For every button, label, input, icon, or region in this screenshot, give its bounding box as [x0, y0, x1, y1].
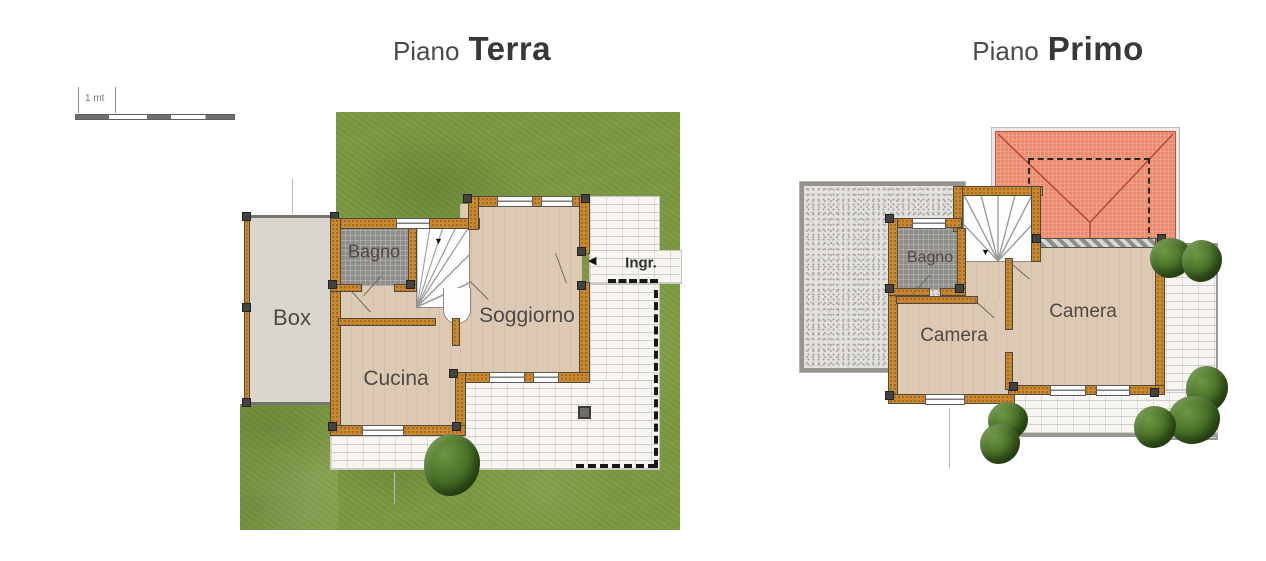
- window: [1050, 385, 1086, 396]
- room-label-soggiorno: Soggiorno: [479, 304, 575, 328]
- scale-rule: [75, 114, 235, 120]
- pillar: [452, 422, 461, 431]
- pillar: [242, 212, 251, 221]
- room-label-camera-left: Camera: [920, 325, 988, 347]
- staircase: [963, 194, 1033, 262]
- window: [541, 196, 573, 207]
- drain-grate: [578, 406, 591, 419]
- wall-segment: [338, 318, 436, 326]
- pillar: [1009, 382, 1018, 391]
- pillar: [955, 284, 964, 293]
- dashed-boundary: [654, 290, 658, 468]
- room-label-ingresso: Ingr.: [625, 255, 657, 272]
- pillar: [328, 422, 337, 431]
- pillar: [406, 280, 415, 289]
- wall-segment: [579, 282, 590, 383]
- stairs-down-arrow-icon: ▼: [981, 248, 990, 257]
- wall-segment: [330, 218, 341, 436]
- room-label-bagno: Bagno: [907, 249, 953, 267]
- pillar: [449, 369, 458, 378]
- pillar: [885, 214, 894, 223]
- wall-segment: [888, 288, 930, 296]
- window: [1096, 385, 1130, 396]
- paving-terrace: [589, 284, 660, 382]
- window: [925, 394, 965, 405]
- pillar: [885, 391, 894, 400]
- ref-line: [394, 472, 395, 504]
- room-label-box: Box: [273, 305, 311, 331]
- wall-segment: [953, 186, 1043, 196]
- window: [497, 196, 533, 207]
- pillar: [328, 280, 337, 289]
- ref-line: [949, 408, 950, 468]
- pillar: [242, 398, 251, 407]
- bush: [1134, 406, 1176, 448]
- plan-title-name: Primo: [1048, 30, 1144, 67]
- pillar: [1032, 234, 1041, 243]
- plan-title-prefix: Piano: [972, 36, 1039, 66]
- wall-segment: [1005, 258, 1013, 330]
- window: [362, 425, 404, 436]
- wall-segment: [1008, 385, 1165, 395]
- entry-arrow-icon: ◀: [588, 256, 596, 267]
- pillar: [577, 247, 586, 256]
- window: [489, 372, 525, 383]
- window: [396, 218, 430, 229]
- dashed-roof-outline: [1028, 158, 1150, 243]
- plan-title-terra: PianoTerra: [332, 30, 612, 68]
- wall-segment: [452, 318, 460, 346]
- pillar: [885, 284, 894, 293]
- plan-title-primo: PianoPrimo: [918, 30, 1198, 68]
- room-floor-camera-left: [896, 296, 1012, 398]
- room-label-camera-right: Camera: [1049, 301, 1117, 323]
- ref-line: [292, 178, 293, 214]
- window: [912, 218, 946, 229]
- scale-label: 1 mt: [85, 93, 104, 104]
- bush: [980, 424, 1020, 464]
- room-floor-soggiorno: [460, 204, 582, 382]
- plan-title-name: Terra: [468, 30, 551, 67]
- dashed-boundary: [576, 464, 656, 468]
- stairs-down-arrow-icon: ▼: [434, 237, 443, 246]
- window: [533, 372, 559, 383]
- plan-title-prefix: Piano: [393, 36, 460, 66]
- grass-area: [240, 404, 338, 530]
- wall-segment: [896, 296, 978, 304]
- pillar: [242, 303, 251, 312]
- paving-terrace: [589, 196, 660, 254]
- wall-segment: [1031, 186, 1041, 262]
- dashed-boundary: [608, 279, 658, 283]
- pillar: [1150, 388, 1159, 397]
- wall-segment: [888, 218, 898, 404]
- paving-terrace: [458, 380, 660, 470]
- wall-segment-parapet: [1035, 238, 1165, 248]
- floorplan-canvas: PianoTerra PianoPrimo 1 mt: [0, 0, 1266, 561]
- scale-tick: [78, 87, 79, 113]
- scale-tick: [115, 87, 116, 113]
- wall-segment: [579, 196, 590, 254]
- pillar: [463, 194, 472, 203]
- room-label-cucina: Cucina: [363, 367, 428, 391]
- stairs-treads: [964, 195, 1032, 261]
- pillar: [577, 281, 586, 290]
- room-label-bagno: Bagno: [348, 242, 400, 263]
- pillar: [581, 194, 590, 203]
